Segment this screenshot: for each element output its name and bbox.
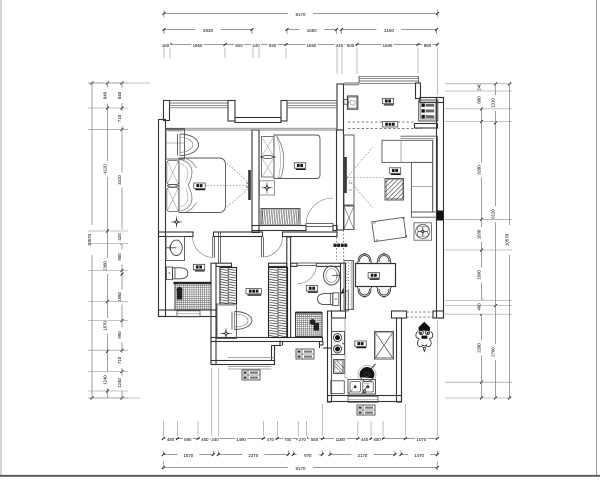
svg-text:1560: 1560 [117,292,122,302]
svg-text:1650: 1650 [307,43,317,48]
svg-text:1590: 1590 [383,43,393,48]
svg-text:990: 990 [117,331,122,339]
svg-text:420: 420 [117,233,122,241]
svg-text:270: 270 [299,437,307,442]
svg-text:1670: 1670 [103,321,108,331]
svg-text:450: 450 [201,437,209,442]
svg-text:1240: 1240 [117,378,122,388]
svg-text:470: 470 [267,437,275,442]
svg-text:500: 500 [347,43,355,48]
svg-text:890: 890 [424,43,432,48]
svg-text:2170: 2170 [358,453,368,458]
svg-text:970: 970 [304,453,312,458]
svg-text:3180: 3180 [384,28,395,33]
svg-text:930: 930 [269,43,277,48]
svg-text:3280: 3280 [477,165,482,175]
svg-text:10570: 10570 [505,233,510,246]
svg-text:600: 600 [477,96,482,104]
svg-text:840: 840 [117,91,122,99]
svg-text:900: 900 [117,253,122,261]
svg-text:3410: 3410 [117,175,122,185]
svg-text:840: 840 [103,91,108,99]
svg-text:820: 820 [235,43,243,48]
svg-text:1030: 1030 [477,229,482,239]
svg-text:480: 480 [167,437,175,442]
svg-text:2760: 2760 [491,347,496,357]
svg-text:9170: 9170 [295,12,306,17]
svg-text:550: 550 [311,437,319,442]
svg-text:10570: 10570 [87,233,92,246]
svg-text:2270: 2270 [248,453,258,458]
svg-text:2280: 2280 [477,343,482,353]
svg-text:460: 460 [477,303,482,311]
svg-text:1180: 1180 [336,437,346,442]
svg-text:1650: 1650 [307,28,318,33]
svg-text:690: 690 [184,437,192,442]
svg-text:1240: 1240 [103,375,108,385]
svg-text:710: 710 [117,356,122,364]
svg-text:700: 700 [284,437,292,442]
svg-text:1470: 1470 [414,453,424,458]
svg-text:400: 400 [373,437,381,442]
svg-text:1690: 1690 [477,270,482,280]
svg-text:2360: 2360 [103,261,108,271]
svg-text:1070: 1070 [417,437,427,442]
svg-text:6120: 6120 [491,209,496,219]
svg-text:440: 440 [361,437,369,442]
svg-text:160: 160 [162,43,170,48]
svg-text:1310: 1310 [491,98,496,108]
svg-text:240: 240 [336,43,344,48]
svg-text:240: 240 [212,437,220,442]
svg-text:4120: 4120 [103,164,108,174]
svg-text:1570: 1570 [183,453,193,458]
svg-text:9170: 9170 [295,466,306,471]
svg-text:710: 710 [117,114,122,122]
svg-text:1950: 1950 [193,43,203,48]
svg-text:1490: 1490 [236,437,246,442]
svg-text:240: 240 [252,43,260,48]
svg-text:2930: 2930 [203,28,214,33]
